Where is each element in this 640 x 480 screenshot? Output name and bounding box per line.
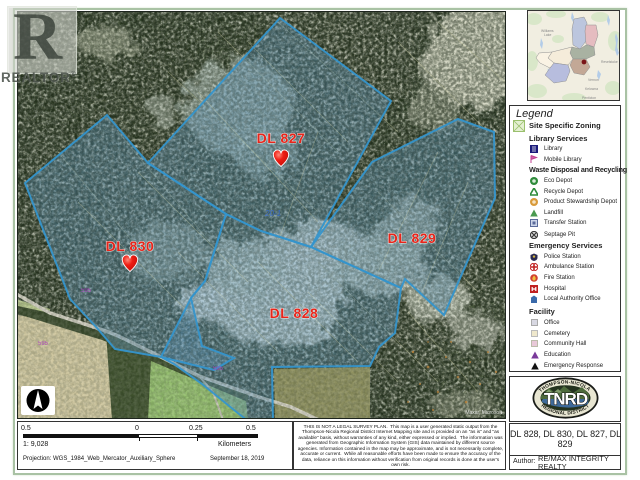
svg-text:Kelowna: Kelowna	[585, 87, 598, 91]
svg-text:595: 595	[38, 341, 49, 347]
svg-text:Penticton: Penticton	[582, 96, 596, 100]
svg-text:TNRD: TNRD	[544, 390, 588, 409]
svg-text:Lake: Lake	[544, 33, 551, 37]
svg-text:Vernon: Vernon	[588, 78, 599, 82]
svg-text:595: 595	[81, 288, 92, 294]
svg-text:DL 829: DL 829	[388, 230, 437, 246]
svg-text:DL 828: DL 828	[270, 305, 319, 321]
svg-text:DL 830: DL 830	[106, 238, 155, 254]
svg-text:Maxar, Microsoft: Maxar, Microsoft	[465, 410, 502, 416]
svg-text:595: 595	[213, 366, 224, 372]
svg-text:DL 827: DL 827	[257, 130, 306, 146]
svg-text:20-1: 20-1	[264, 209, 281, 218]
svg-text:Revelstoke: Revelstoke	[601, 60, 618, 64]
